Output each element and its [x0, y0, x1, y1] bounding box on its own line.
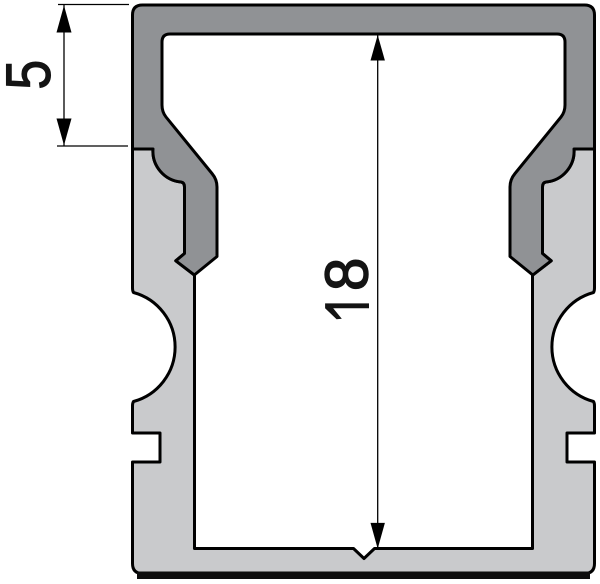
- svg-text:5: 5: [0, 60, 64, 90]
- svg-text:8: 8: [314, 258, 381, 291]
